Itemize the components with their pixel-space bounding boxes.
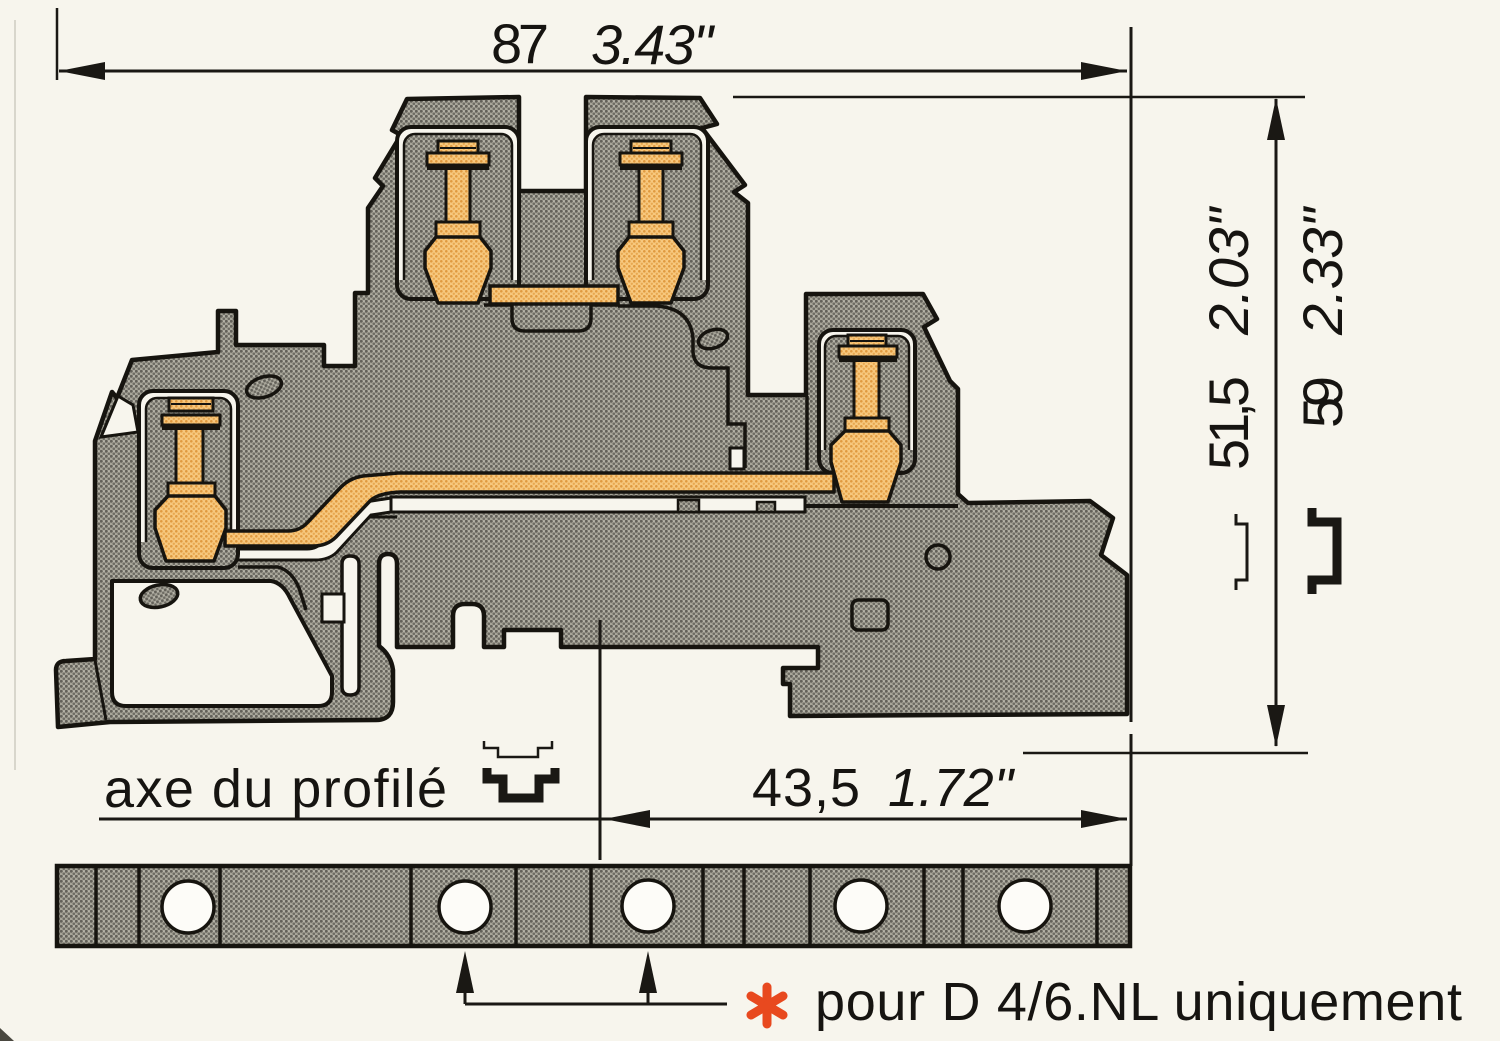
svg-text:pour D 4/6.NL uniquement: pour D 4/6.NL uniquement: [815, 972, 1462, 1032]
svg-text:43,5: 43,5: [752, 758, 860, 818]
svg-text:2.03": 2.03": [1197, 206, 1260, 336]
svg-text:87: 87: [491, 12, 549, 75]
svg-text:2.33": 2.33": [1291, 206, 1354, 336]
svg-text:3.43": 3.43": [591, 13, 715, 76]
svg-text:1.72": 1.72": [888, 758, 1016, 818]
svg-text:51,5: 51,5: [1197, 376, 1260, 470]
svg-text:axe du profilé: axe du profilé: [104, 759, 447, 819]
svg-text:59: 59: [1291, 376, 1354, 428]
